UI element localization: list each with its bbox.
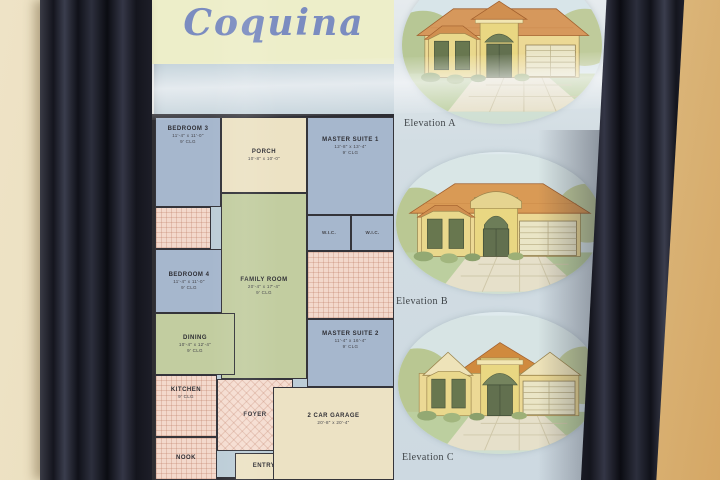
elevations-panel: Elevation A	[394, 0, 608, 480]
room-name: W.I.C.	[322, 230, 336, 236]
room-ceiling: 9' CLG	[181, 285, 197, 291]
room-name: NOOK	[176, 454, 196, 462]
room-name: FAMILY ROOM	[240, 276, 287, 284]
room-nook: NOOK	[155, 437, 217, 480]
elevation-b-illustration	[396, 152, 602, 294]
photo-of-framed-poster: Coquina BEDROOM 3 11'-4" x 11'-0" 9' CLG…	[0, 0, 720, 480]
room-master-suite-2: MASTER SUITE 2 11'-4" x 16'-4" 9' CLG	[307, 319, 394, 387]
elevation-a-label: Elevation A	[404, 118, 456, 129]
room-name: 2 CAR GARAGE	[307, 412, 359, 420]
room-name: ENTRY	[253, 462, 276, 470]
room-name: KITCHEN	[171, 386, 201, 394]
room-porch: PORCH 10'-8" x 10'-0"	[221, 117, 307, 193]
room-kitchen: KITCHEN 9' CLG	[155, 375, 217, 437]
room-bedroom-3: BEDROOM 3 11'-4" x 11'-0" 9' CLG	[155, 117, 221, 207]
room-ceiling: 9' CLG	[256, 290, 272, 296]
elevation-c-label: Elevation C	[402, 452, 454, 463]
room-bath-2	[155, 207, 211, 249]
house-rendering-b	[396, 152, 602, 294]
room-walk-in-closet-1: W.I.C.	[307, 215, 351, 251]
picture-frame-left-bar	[40, 0, 152, 480]
poster-title: Coquina	[152, 2, 396, 44]
room-dims: 20'-8" x 20'-4"	[317, 420, 349, 426]
floor-plan: BEDROOM 3 11'-4" x 11'-0" 9' CLG PORCH 1…	[152, 114, 394, 480]
elevation-c-illustration	[398, 312, 600, 454]
room-name: MASTER SUITE 1	[322, 136, 379, 144]
room-dining: DINING 10'-4" x 12'-4" 9' CLG	[155, 313, 235, 375]
room-master-suite-1: MASTER SUITE 1 12'-8" x 13'-4" 9' CLG	[307, 117, 394, 215]
house-rendering-c	[398, 312, 600, 454]
title-band: Coquina	[152, 0, 396, 64]
room-name: W.I.C.	[365, 230, 379, 236]
poster: Coquina BEDROOM 3 11'-4" x 11'-0" 9' CLG…	[150, 0, 608, 480]
elevation-b-label: Elevation B	[396, 296, 448, 307]
room-name: BEDROOM 4	[169, 271, 210, 279]
room-ceiling: 9' CLG	[180, 139, 196, 145]
room-name: BEDROOM 3	[168, 125, 209, 133]
room-ceiling: 9' CLG	[343, 344, 359, 350]
room-walk-in-closet-2: W.I.C.	[351, 215, 394, 251]
room-ceiling: 9' CLG	[187, 348, 203, 354]
room-dims: 10'-8" x 10'-0"	[248, 156, 280, 162]
house-rendering-a	[402, 0, 602, 124]
room-name: DINING	[183, 334, 207, 342]
room-name: FOYER	[243, 411, 266, 419]
room-name: PORCH	[252, 148, 276, 156]
room-name: MASTER SUITE 2	[322, 330, 379, 338]
room-ceiling: 9' CLG	[343, 150, 359, 156]
room-master-bath	[307, 251, 394, 319]
room-bedroom-4: BEDROOM 4 11'-4" x 11'-0" 9' CLG	[155, 249, 223, 313]
elevation-a-illustration	[402, 0, 602, 124]
room-ceiling: 9' CLG	[178, 394, 194, 400]
room-garage: 2 CAR GARAGE 20'-8" x 20'-4"	[273, 387, 394, 480]
